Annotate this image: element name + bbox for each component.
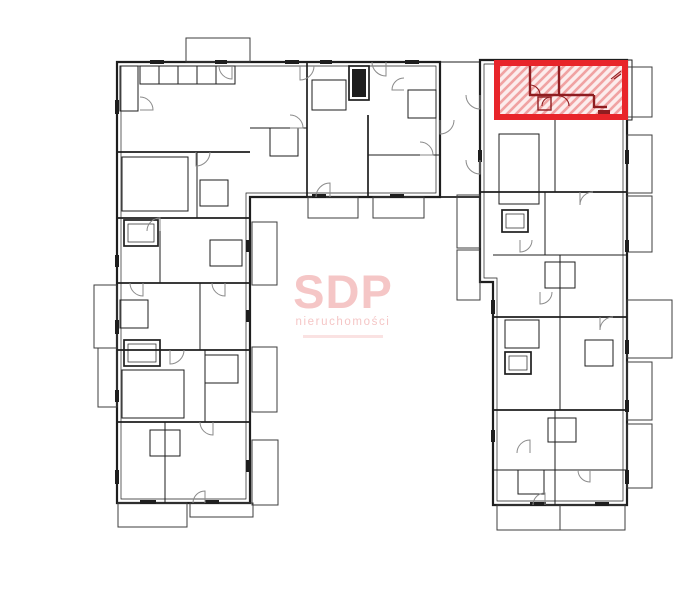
balcony [94, 285, 117, 348]
stairs [505, 320, 539, 348]
balcony [308, 197, 358, 218]
balcony [186, 38, 250, 62]
stairs [312, 80, 346, 110]
balcony [627, 362, 652, 420]
watermark-underline [303, 335, 383, 338]
elevator [502, 210, 528, 232]
balcony [252, 347, 277, 412]
balcony [252, 440, 278, 505]
balcony [457, 195, 480, 248]
balcony [627, 196, 652, 252]
watermark-subtitle: nieruchomości [288, 316, 398, 328]
balcony [373, 197, 424, 218]
balcony [627, 424, 652, 488]
balcony [627, 300, 672, 358]
balcony [457, 250, 480, 300]
stairwells [122, 66, 539, 418]
watermark-brand: SDP [288, 270, 398, 313]
balcony [98, 348, 117, 407]
floorplan-canvas: SDP nieruchomości [0, 0, 687, 602]
balcony [560, 505, 625, 530]
elevator [124, 340, 160, 366]
balcony [497, 505, 560, 530]
stairs [499, 134, 539, 204]
watermark: SDP nieruchomości [288, 270, 398, 338]
balcony [627, 135, 652, 193]
elevator [124, 220, 158, 246]
balcony [252, 222, 277, 285]
stairs [122, 370, 184, 418]
balcony [118, 503, 187, 527]
highlighted-unit[interactable] [497, 63, 625, 117]
balcony [627, 67, 652, 117]
elevator [349, 66, 369, 100]
stairs [122, 157, 188, 211]
elevator [505, 352, 531, 374]
balcony [190, 503, 253, 517]
